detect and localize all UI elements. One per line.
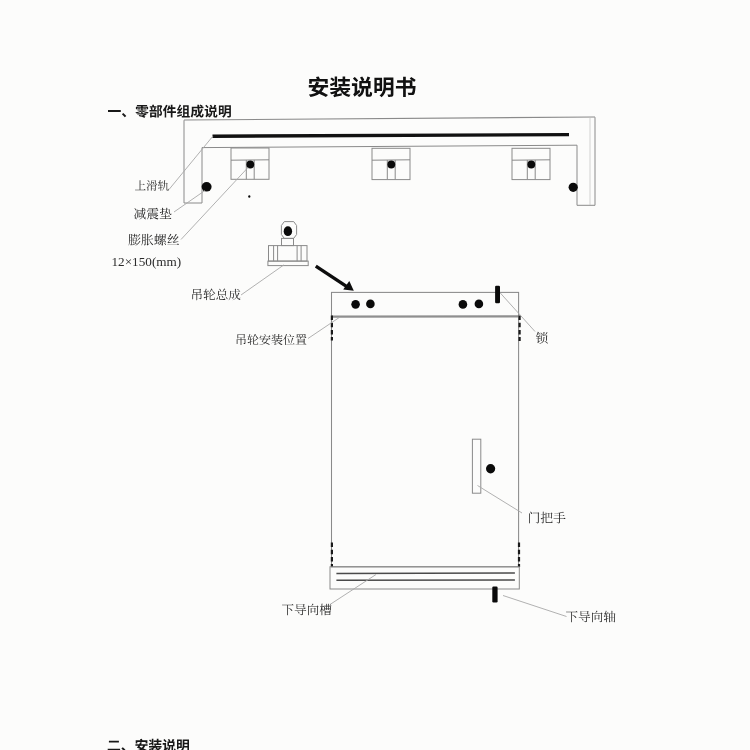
svg-text:12×150(mm): 12×150(mm) xyxy=(112,254,182,269)
